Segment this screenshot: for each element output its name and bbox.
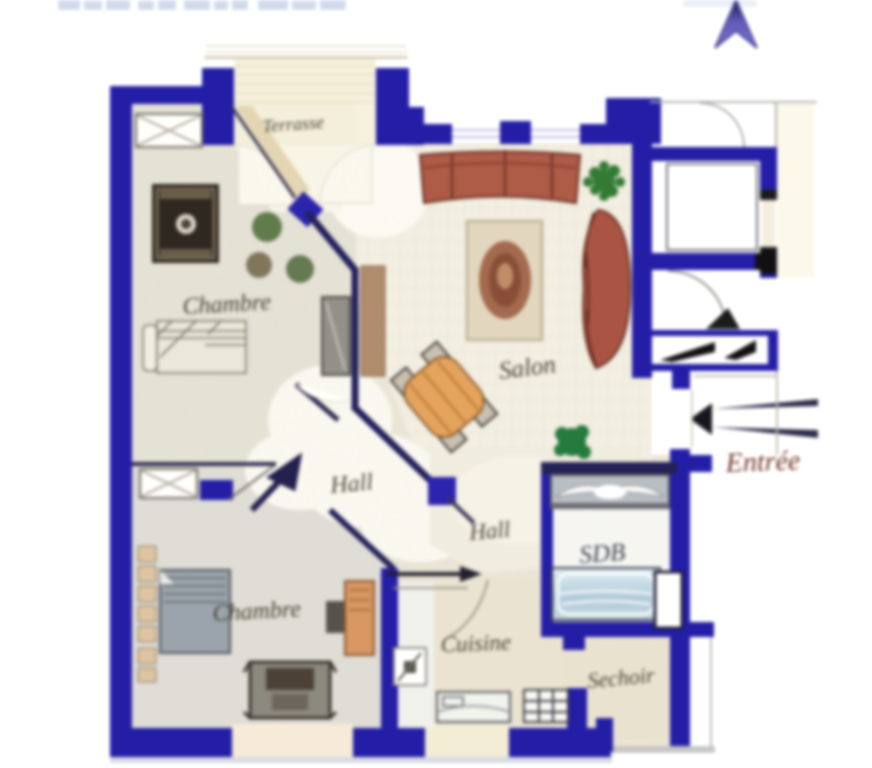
svg-text:Hall: Hall xyxy=(467,517,511,546)
svg-text:Terrasse: Terrasse xyxy=(262,112,325,136)
svg-text:Chambre: Chambre xyxy=(212,596,302,627)
svg-text:Cuisine: Cuisine xyxy=(440,630,511,657)
svg-text:Chambre: Chambre xyxy=(182,289,272,320)
svg-text:Entrée: Entrée xyxy=(724,445,801,479)
svg-text:Hall: Hall xyxy=(328,469,374,499)
svg-text:SDB: SDB xyxy=(579,539,627,569)
